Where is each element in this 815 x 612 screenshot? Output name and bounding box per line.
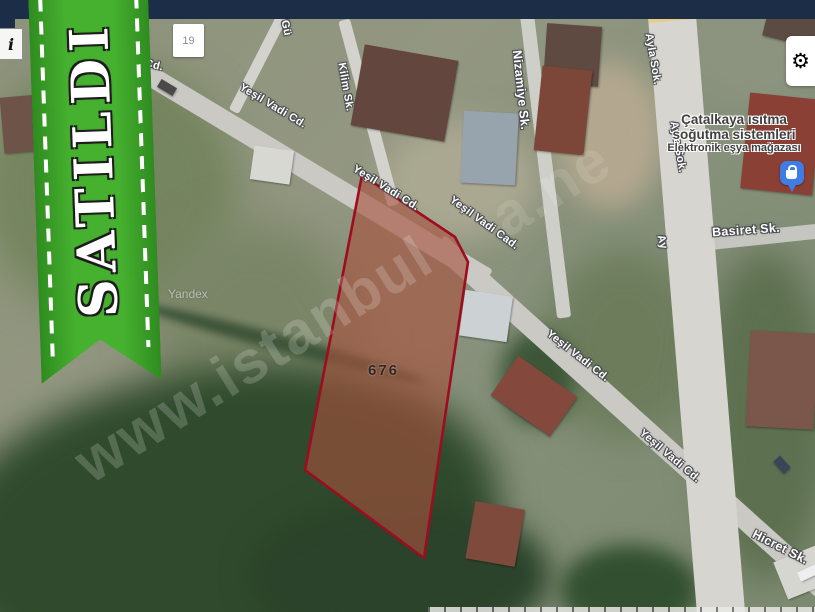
yandex-watermark: Yandex — [168, 287, 208, 301]
gear-icon: ⚙ — [791, 51, 810, 72]
house-number-text: 19 — [182, 35, 194, 47]
top-bar-corner — [0, 19, 15, 28]
info-button[interactable]: i — [0, 28, 23, 60]
sold-ribbon: SATILDI — [28, 0, 162, 396]
poi-label: Çatalkaya ısıtma soğutma sistemleri Elek… — [650, 112, 815, 154]
shopping-bag-icon — [786, 170, 797, 179]
poi-name-line1: Çatalkaya ısıtma — [650, 112, 815, 127]
building — [250, 145, 294, 184]
building — [746, 330, 815, 429]
poi-name-line2: soğutma sistemleri — [650, 127, 815, 142]
building — [351, 44, 459, 141]
sold-ribbon-label: SATILDI — [58, 19, 130, 319]
house-number-marker[interactable]: 19 — [173, 24, 204, 57]
parcel-number-label: 676 — [368, 362, 399, 379]
settings-button[interactable]: ⚙ — [786, 36, 815, 86]
listing-map-screenshot: 676 Vadi Cd. Gü Kilim Sk. Yeşil Vadi Cd.… — [0, 0, 815, 612]
poi-pin[interactable] — [780, 161, 804, 185]
building — [465, 501, 524, 567]
attribution-sliver — [428, 607, 815, 612]
info-icon: i — [8, 35, 14, 54]
building — [459, 290, 513, 342]
poi-category: Elektronik eşya mağazası — [650, 142, 815, 154]
